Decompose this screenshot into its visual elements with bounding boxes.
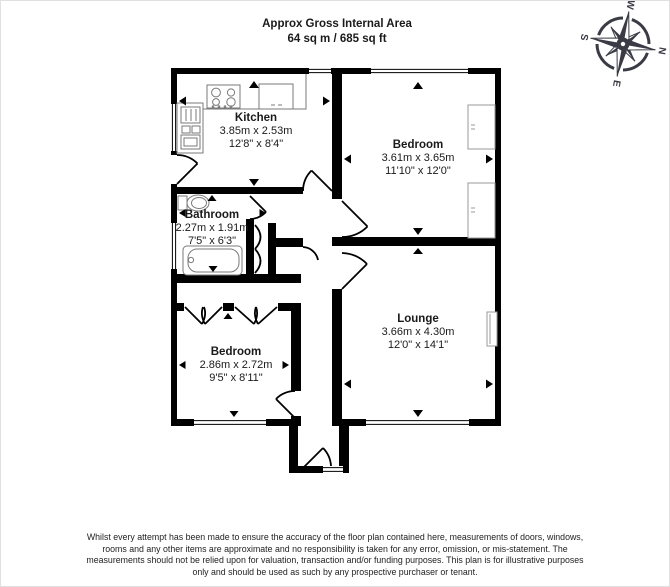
door-bedroom2 [276, 391, 295, 418]
wardrobe-bifold-doors-b [235, 307, 277, 324]
front-door-panel [323, 466, 343, 473]
room-name: Bedroom [161, 346, 311, 359]
compass-letter-e: E [610, 79, 622, 88]
room-dim-metric: 3.85m x 2.53m [181, 125, 331, 138]
room-dim-imperial: 11'10" x 12'0" [343, 165, 493, 178]
compass-letter-n: N [655, 46, 667, 55]
door-front-entrance [303, 448, 331, 468]
compass-letter-w: W [624, 1, 637, 11]
door-lounge [342, 253, 367, 289]
stove-icon [207, 85, 240, 108]
room-dim-imperial: 12'8" x 8'4" [181, 138, 331, 151]
room-dim-metric: 3.61m x 3.65m [343, 152, 493, 165]
floor-plan-drawing: N E S W [1, 1, 669, 586]
floorplan-page: Approx Gross Internal Area 64 sq m / 685… [0, 0, 670, 587]
window-kitchen-top [309, 68, 331, 74]
room-name: Kitchen [181, 112, 331, 125]
compass-rose: N E S W [571, 1, 669, 95]
door-bedroom1 [342, 201, 368, 237]
room-label-kitchen: Kitchen 3.85m x 2.53m 12'8" x 8'4" [181, 112, 331, 150]
room-dim-imperial: 9'5" x 8'11" [161, 372, 311, 385]
room-dim-imperial: 7'5" x 6'3" [137, 235, 287, 248]
window-bedroom1-top [371, 68, 468, 74]
window-lounge-bottom [366, 419, 469, 426]
room-label-bedroom2: Bedroom 2.86m x 2.72m 9'5" x 8'11" [161, 346, 311, 384]
room-dim-imperial: 12'0" x 14'1" [343, 339, 493, 352]
disclaimer-text: Whilst every attempt has been made to en… [81, 532, 589, 578]
window-bedroom2-bottom [194, 419, 266, 426]
room-dim-metric: 2.27m x 1.91m [137, 222, 287, 235]
room-dim-metric: 3.66m x 4.30m [343, 326, 493, 339]
room-name: Bedroom [343, 139, 493, 152]
door-hall-arc [303, 247, 318, 260]
window-kitchen-left [171, 104, 177, 151]
room-label-bathroom: Bathroom 2.27m x 1.91m 7'5" x 6'3" [137, 209, 287, 247]
compass-letter-s: S [578, 33, 590, 42]
door-kitchen-side [177, 155, 198, 184]
room-dim-metric: 2.86m x 2.72m [161, 359, 311, 372]
wardrobe-bifold-doors-a [185, 307, 222, 324]
room-name: Bathroom [137, 209, 287, 222]
door-kitchen-hall [303, 171, 332, 192]
room-label-bedroom1: Bedroom 3.61m x 3.65m 11'10" x 12'0" [343, 139, 493, 177]
room-name: Lounge [343, 313, 493, 326]
room-label-lounge: Lounge 3.66m x 4.30m 12'0" x 14'1" [343, 313, 493, 351]
